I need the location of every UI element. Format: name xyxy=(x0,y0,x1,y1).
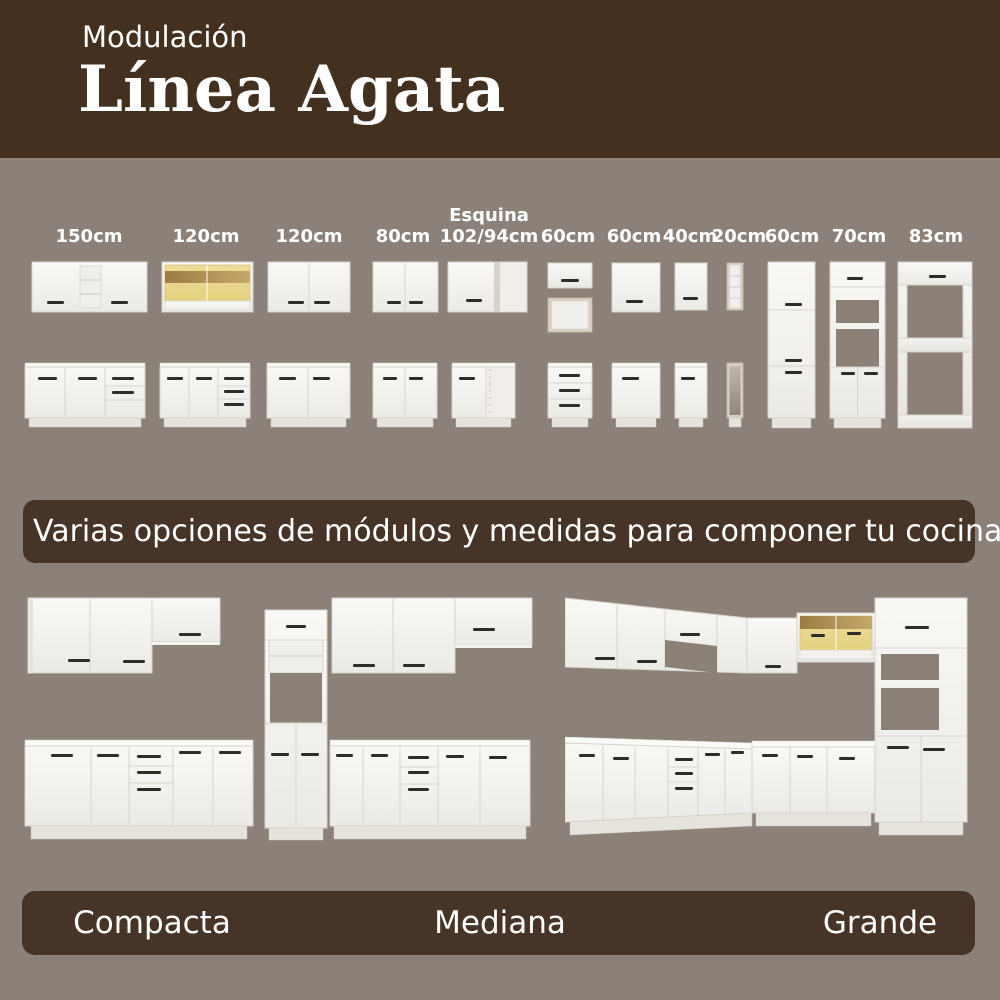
module-base-20-niche xyxy=(727,363,743,427)
module-base-150 xyxy=(25,363,145,427)
module-base-120-drawers xyxy=(160,363,250,427)
module-size-label-150: 150cm xyxy=(56,226,123,247)
module-oven-tower-70 xyxy=(830,262,885,428)
kitchen-grande-artwork xyxy=(565,570,1000,870)
grande-glass-wall-cabinet xyxy=(797,613,875,662)
module-wall-esquina xyxy=(448,262,527,312)
module-base-60-door xyxy=(612,363,660,427)
infographic-root: Modulación Línea Agata 150cm 120cm 120cm… xyxy=(0,0,1000,1000)
module-size-label-80: 80cm xyxy=(376,226,430,247)
module-size-label-60c: 60cm xyxy=(765,226,819,247)
module-wall-120-glass xyxy=(162,262,253,312)
grande-right-base-cabinets xyxy=(752,741,875,826)
subtitle-text: Varias opciones de módulos y medidas par… xyxy=(23,514,1000,549)
compacta-wall-cabinets xyxy=(28,598,220,673)
module-fridge-frame-83 xyxy=(898,262,972,428)
module-base-120-doors xyxy=(267,363,350,427)
modules-artwork xyxy=(0,250,1000,435)
module-wall-60-door xyxy=(612,263,660,312)
module-wall-40 xyxy=(675,263,707,310)
module-size-label-60b: 60cm xyxy=(607,226,661,247)
module-size-label-120a: 120cm xyxy=(173,226,240,247)
compacta-base-cabinets xyxy=(25,740,253,839)
module-base-esquina xyxy=(452,363,515,427)
kitchen-name-compacta: Compacta xyxy=(73,905,231,941)
module-base-40 xyxy=(675,363,707,427)
header: Modulación Línea Agata xyxy=(0,0,1000,158)
kitchen-mediana-artwork xyxy=(258,585,558,870)
module-wall-150 xyxy=(32,262,147,312)
kitchen-size-bar: Compacta Mediana Grande xyxy=(22,891,975,955)
mediana-tall-tower xyxy=(265,610,327,840)
kitchen-name-grande: Grande xyxy=(823,905,937,941)
module-size-label-83: 83cm xyxy=(909,226,963,247)
module-wall-60-flip-and-shelf xyxy=(548,263,592,332)
module-wall-120 xyxy=(268,262,350,312)
module-size-label-60a: 60cm xyxy=(541,226,595,247)
module-base-80 xyxy=(373,363,437,427)
module-base-60-drawers xyxy=(548,363,592,427)
grande-left-base-cabinets xyxy=(565,737,752,835)
module-open-shelf-20 xyxy=(727,263,743,310)
module-size-label-esquina-line2: 102/94cm xyxy=(440,226,539,247)
grande-left-wall-cabinets xyxy=(565,598,747,673)
module-size-label-70: 70cm xyxy=(832,226,886,247)
module-size-label-20: 20cm xyxy=(712,226,766,247)
module-size-label-esquina: Esquina 102/94cm xyxy=(440,205,539,247)
grande-corner-wall-cabinet xyxy=(747,618,797,673)
kitchen-name-mediana: Mediana xyxy=(434,905,566,941)
mediana-base-cabinets xyxy=(330,740,530,839)
grande-tall-tower xyxy=(875,598,967,835)
mediana-wall-cabinets xyxy=(332,598,532,673)
header-kicker: Modulación xyxy=(82,20,248,54)
module-size-label-esquina-line1: Esquina xyxy=(440,205,539,226)
module-size-label-40: 40cm xyxy=(663,226,717,247)
page-title: Línea Agata xyxy=(78,50,505,130)
module-tall-pantry-60 xyxy=(768,262,815,428)
kitchen-compacta-artwork xyxy=(15,585,265,870)
subtitle-banner: Varias opciones de módulos y medidas par… xyxy=(23,500,975,563)
module-size-label-120b: 120cm xyxy=(276,226,343,247)
module-wall-80 xyxy=(373,262,438,312)
